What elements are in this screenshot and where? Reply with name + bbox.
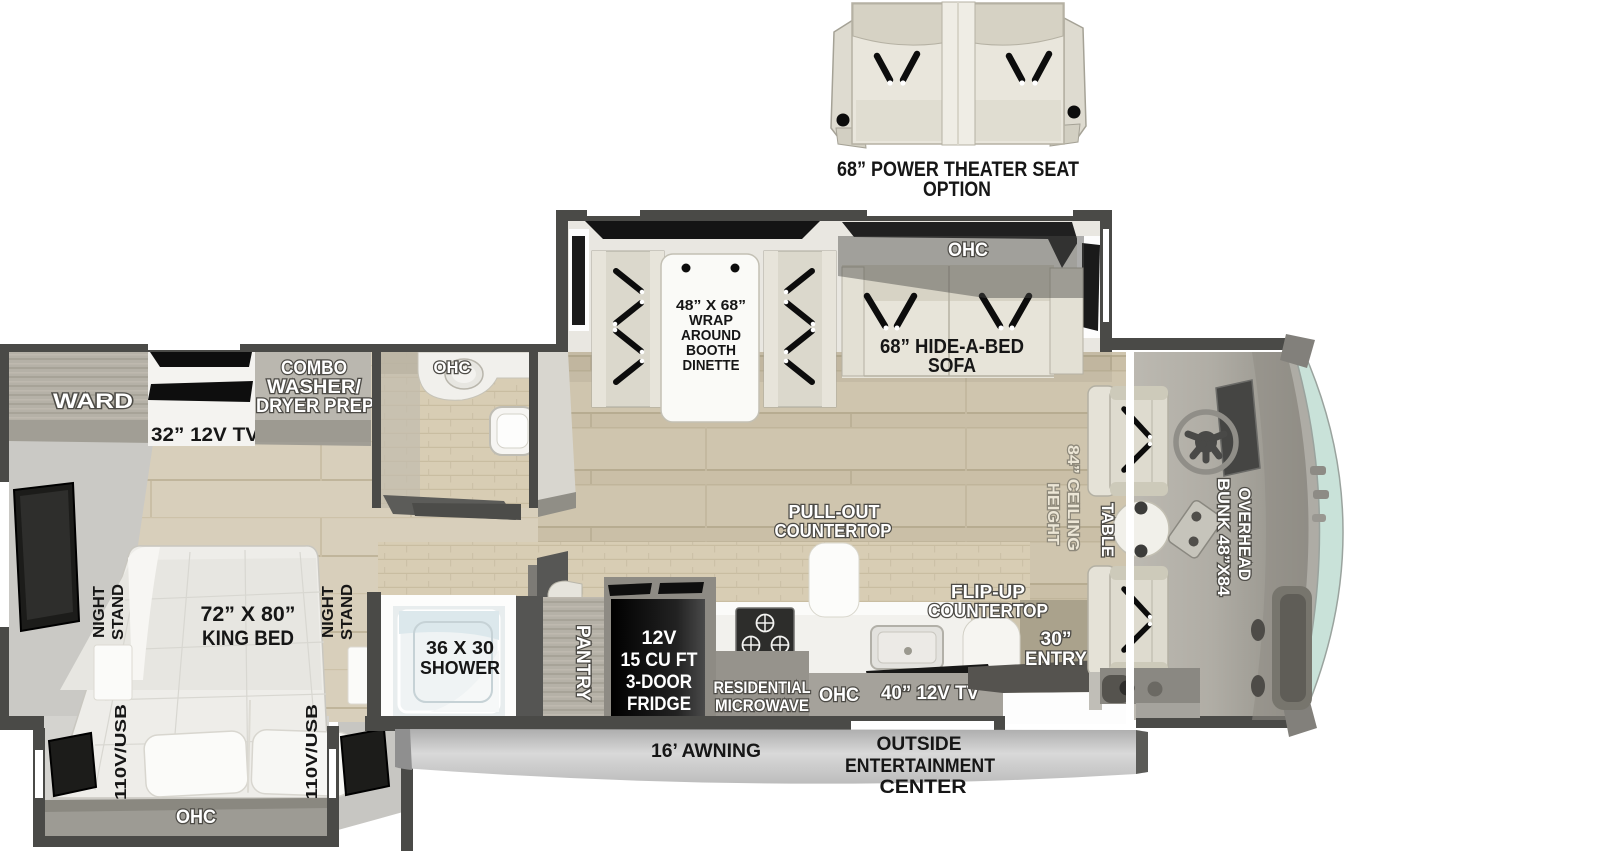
svg-text:72” X 80”: 72” X 80” (201, 603, 296, 626)
svg-text:BUNK 48”X84: BUNK 48”X84 (1214, 478, 1233, 597)
svg-text:84” CEILING: 84” CEILING (1064, 445, 1081, 551)
svg-text:DINETTE: DINETTE (683, 357, 740, 374)
svg-text:OHC: OHC (434, 358, 471, 377)
svg-text:NIGHT: NIGHT (320, 586, 337, 638)
svg-text:KING BED: KING BED (202, 627, 294, 650)
svg-text:12V: 12V (642, 628, 677, 649)
svg-text:RESIDENTIAL: RESIDENTIAL (714, 678, 811, 697)
svg-text:HEIGHT: HEIGHT (1044, 483, 1061, 545)
svg-text:FRIDGE: FRIDGE (627, 694, 691, 715)
svg-text:FLIP-UP: FLIP-UP (951, 582, 1025, 602)
svg-text:PULL-OUT: PULL-OUT (789, 502, 880, 522)
svg-text:PANTRY: PANTRY (572, 625, 593, 701)
svg-text:ENTERTAINMENT: ENTERTAINMENT (845, 756, 995, 777)
svg-text:COUNTERTOP: COUNTERTOP (928, 601, 1048, 621)
svg-text:STAND: STAND (339, 584, 356, 640)
svg-text:OHC: OHC (819, 685, 859, 706)
svg-text:TABLE: TABLE (1098, 503, 1117, 557)
svg-text:WASHER/: WASHER/ (267, 377, 362, 398)
svg-text:CENTER: CENTER (880, 777, 967, 798)
svg-text:32” 12V TV: 32” 12V TV (151, 425, 259, 446)
svg-text:COUNTERTOP: COUNTERTOP (775, 521, 892, 541)
svg-text:40” 12V TV: 40” 12V TV (881, 683, 979, 704)
svg-text:MICROWAVE: MICROWAVE (715, 696, 809, 715)
svg-text:OVERHEAD: OVERHEAD (1235, 488, 1254, 581)
svg-text:OHC: OHC (176, 807, 216, 828)
svg-text:3-DOOR: 3-DOOR (626, 672, 692, 693)
svg-text:36 X 30: 36 X 30 (426, 638, 494, 658)
svg-text:110V/USB: 110V/USB (113, 704, 130, 800)
svg-text:ENTRY: ENTRY (1025, 649, 1087, 670)
svg-text:16’ AWNING: 16’ AWNING (651, 741, 761, 762)
svg-text:COMBO: COMBO (281, 358, 347, 379)
svg-text:SHOWER: SHOWER (420, 658, 500, 678)
svg-text:STAND: STAND (110, 584, 127, 640)
svg-text:OHC: OHC (948, 240, 988, 261)
svg-text:NIGHT: NIGHT (91, 586, 108, 638)
svg-text:WARD: WARD (53, 390, 133, 413)
svg-text:DRYER PREP: DRYER PREP (256, 396, 374, 417)
svg-text:15 CU FT: 15 CU FT (621, 650, 698, 671)
svg-text:OUTSIDE: OUTSIDE (877, 734, 962, 755)
svg-text:30”: 30” (1041, 629, 1072, 650)
svg-text:SOFA: SOFA (928, 355, 976, 377)
svg-text:110V/USB: 110V/USB (304, 704, 321, 800)
svg-text:OPTION: OPTION (923, 178, 991, 201)
